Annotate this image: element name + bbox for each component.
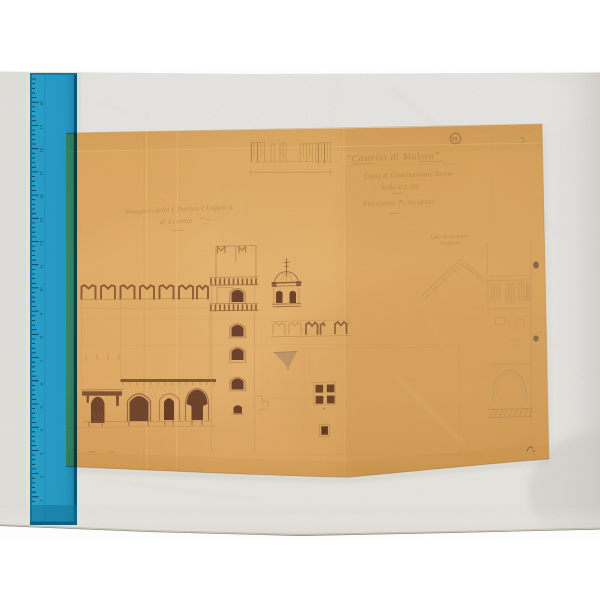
svg-text:11: 11 <box>39 264 44 269</box>
svg-text:16: 16 <box>39 147 44 152</box>
svg-text:14: 14 <box>39 194 44 199</box>
svg-text:12: 12 <box>39 240 44 245</box>
svg-text:10: 10 <box>39 287 44 292</box>
svg-text:13: 13 <box>39 217 44 222</box>
svg-text:18: 18 <box>39 101 44 106</box>
svg-text:17: 17 <box>39 124 44 129</box>
svg-text:15: 15 <box>39 171 44 176</box>
